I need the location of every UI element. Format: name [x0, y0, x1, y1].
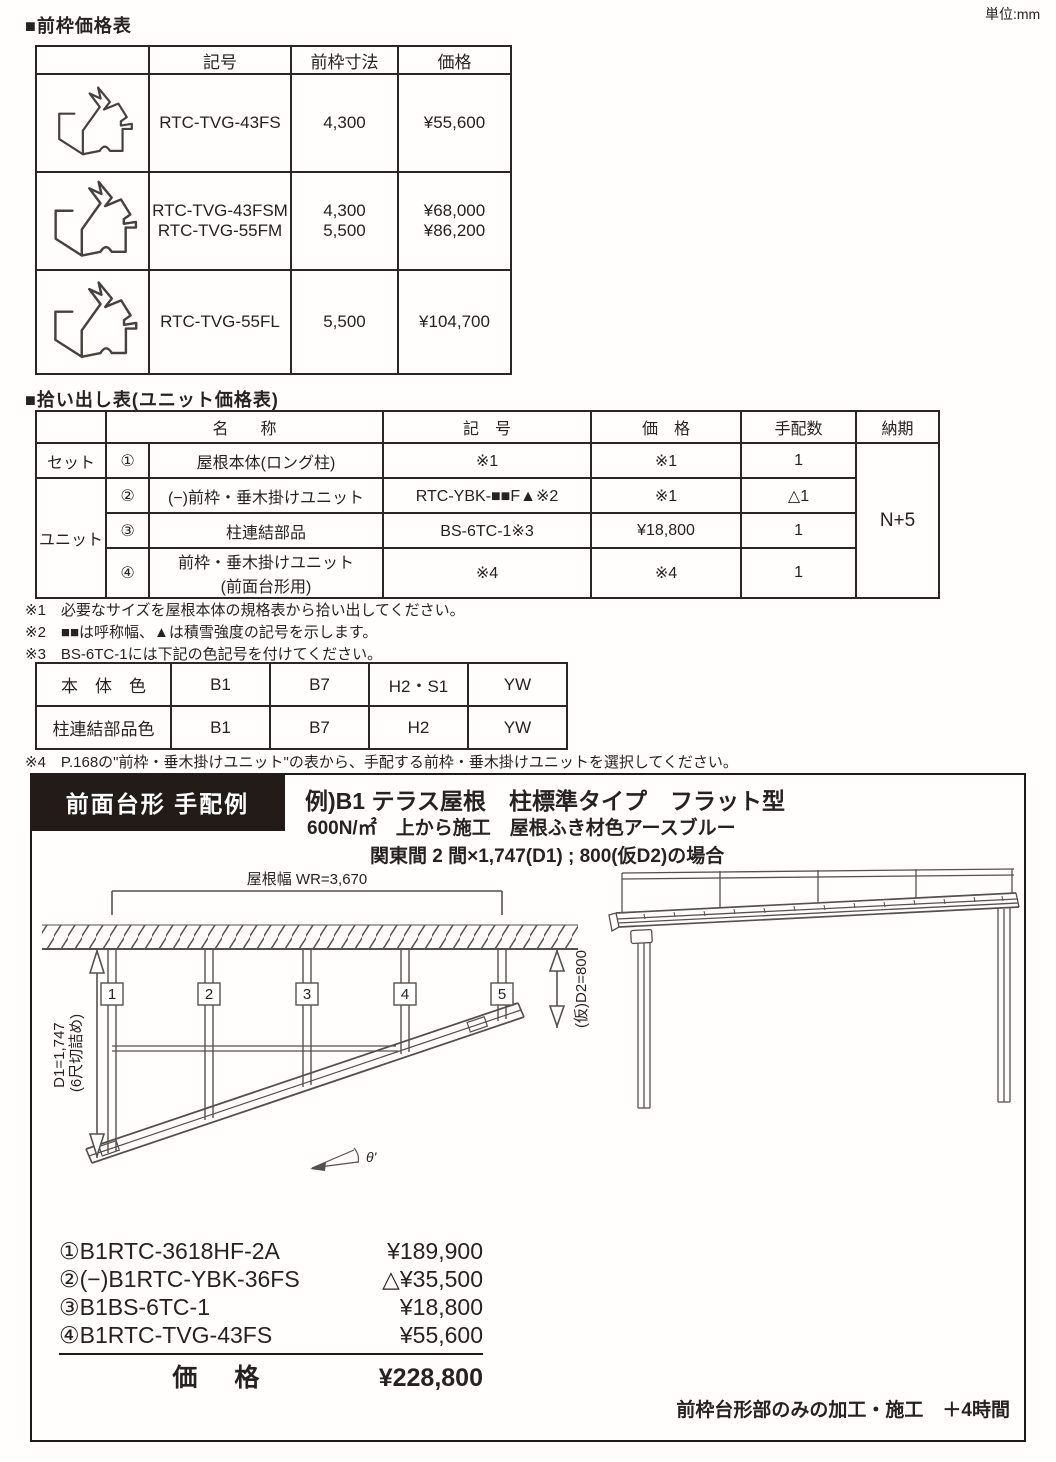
symbol-cell: ※4: [383, 548, 591, 598]
front-view-diagram: 屋根幅 WR=3,670 1 2 3 4 5 D1=1,747 (6尺切詰め) …: [40, 865, 600, 1200]
footer-note: 前枠台形部のみの加工・施工 ＋4時間: [676, 1395, 1010, 1422]
price-cell: ¥18,800: [591, 513, 741, 548]
row-number: ③: [106, 513, 149, 548]
list-item: ①B1RTC-3618HF-2A ¥189,900: [59, 1237, 483, 1265]
qty-cell: 1: [741, 513, 856, 548]
perspective-diagram: [604, 857, 1024, 1127]
dimension-line: 5,500: [292, 221, 397, 241]
total-label: 価 格: [59, 1361, 379, 1395]
name-line: 前枠・垂木掛けユニット: [150, 549, 382, 573]
table-row: セット ① 屋根本体(ロング柱) ※1 ※1 1 N+5: [36, 443, 939, 478]
d2-dimension-label: (仮)D2=800: [573, 950, 590, 1028]
note-4: ※4 P.168の"前枠・垂木掛けユニット"の表から、手配する前枠・垂木掛けユニ…: [25, 752, 738, 774]
color-code-table: 本 体 色 B1 B7 H2・S1 YW 柱連結部品色 B1 B7 H2 YW: [35, 662, 568, 750]
color-cell: B7: [270, 663, 369, 706]
price-cell: ¥68,000 ¥86,200: [398, 172, 511, 270]
table-row: ③ 柱連結部品 BS-6TC-1※3 ¥18,800 1: [36, 513, 939, 548]
color-cell: B1: [171, 706, 270, 749]
group-label-set: セット: [36, 443, 106, 478]
delivery-header: 納期: [856, 411, 939, 443]
total-price: ¥228,800: [379, 1361, 483, 1395]
roof-width-label: 屋根幅 WR=3,670: [247, 871, 367, 888]
dimension-line: 4,300: [292, 201, 397, 221]
list-item: ②(−)B1RTC-YBK-36FS △¥35,500: [59, 1265, 483, 1293]
post-number-4: 4: [401, 986, 409, 1003]
table-row: 本 体 色 B1 B7 H2・S1 YW: [36, 663, 567, 706]
example-box-title: 前面台形 手配例: [30, 773, 285, 831]
table-row: RTC-TVG-55FL 5,500 ¥104,700: [36, 270, 511, 374]
profile-drawing-icon: [36, 270, 149, 374]
profile-drawing-icon: [36, 172, 149, 270]
symbol-cell: RTC-YBK-■■F▲※2: [383, 478, 591, 513]
list-item: ④B1RTC-TVG-43FS ¥55,600: [59, 1321, 483, 1349]
list-item: ③B1BS-6TC-1 ¥18,800: [59, 1293, 483, 1321]
item-price: △¥35,500: [382, 1265, 483, 1293]
body-color-label: 本 体 色: [36, 663, 171, 706]
note-2: ※2 ■■は呼称幅、▲は積雪強度の記号を示します。: [25, 622, 377, 644]
name-cell: 前枠・垂木掛けユニット (前面台形用): [149, 548, 383, 598]
item-name: ④B1RTC-TVG-43FS: [59, 1321, 272, 1349]
symbol-cell: RTC-TVG-43FSM RTC-TVG-55FM: [149, 172, 291, 270]
item-name: ①B1RTC-3618HF-2A: [59, 1237, 280, 1265]
table-header-row: 名 称 記 号 価 格 手配数 納期: [36, 411, 939, 443]
example-box: 前面台形 手配例 例)B1 テラス屋根 柱標準タイプ フラット型 600N/㎡ …: [30, 773, 1026, 1442]
item-price: ¥18,800: [400, 1293, 483, 1321]
price-line: ¥86,200: [399, 221, 510, 241]
group-label-unit: ユニット: [36, 478, 106, 598]
row-number: ①: [106, 443, 149, 478]
price-header: 価 格: [591, 411, 741, 443]
qty-header: 手配数: [741, 411, 856, 443]
table-row: ユニット ② (−)前枠・垂木掛けユニット RTC-YBK-■■F▲※2 ※1 …: [36, 478, 939, 513]
front-frame-table-heading: ■前枠価格表: [25, 12, 132, 38]
qty-cell: △1: [741, 478, 856, 513]
pickup-table-heading: ■拾い出し表(ユニット価格表): [25, 386, 279, 412]
color-cell: H2・S1: [369, 663, 468, 706]
table-row: 柱連結部品色 B1 B7 H2 YW: [36, 706, 567, 749]
item-price: ¥55,600: [400, 1321, 483, 1349]
color-cell: YW: [468, 706, 567, 749]
example-line-1: 例)B1 テラス屋根 柱標準タイプ フラット型: [305, 782, 785, 816]
unit-label: 単位:mm: [985, 4, 1040, 24]
item-name: ③B1BS-6TC-1: [59, 1293, 210, 1321]
symbol-header: 記号: [149, 46, 291, 74]
profile-drawing-icon: [36, 74, 149, 172]
symbol-cell: RTC-TVG-43FS: [149, 74, 291, 172]
table-row: ④ 前枠・垂木掛けユニット (前面台形用) ※4 ※4 1: [36, 548, 939, 598]
name-cell: 屋根本体(ロング柱): [149, 443, 383, 478]
symbol-header: 記 号: [383, 411, 591, 443]
table-row: RTC-TVG-43FSM RTC-TVG-55FM 4,300 5,500 ¥…: [36, 172, 511, 270]
post-number-2: 2: [205, 986, 213, 1003]
dimension-cell: 5,500: [291, 270, 398, 374]
d1-dimension-label: D1=1,747 (6尺切詰め): [51, 1014, 85, 1092]
row-number: ②: [106, 478, 149, 513]
blank-header-cell: [36, 411, 106, 443]
price-header: 価格: [398, 46, 511, 74]
dimension-header: 前枠寸法: [291, 46, 398, 74]
table-row: RTC-TVG-43FS 4,300 ¥55,600: [36, 74, 511, 172]
pickup-price-table: 名 称 記 号 価 格 手配数 納期 セット ① 屋根本体(ロング柱) ※1 ※…: [35, 410, 940, 599]
color-cell: B1: [171, 663, 270, 706]
price-cell: ※1: [591, 478, 741, 513]
price-line: ¥68,000: [399, 201, 510, 221]
price-cell: ¥55,600: [398, 74, 511, 172]
dimension-cell: 4,300 5,500: [291, 172, 398, 270]
pillar-color-label: 柱連結部品色: [36, 706, 171, 749]
symbol-cell: RTC-TVG-55FL: [149, 270, 291, 374]
name-cell: (−)前枠・垂木掛けユニット: [149, 478, 383, 513]
name-header: 名 称: [106, 411, 383, 443]
qty-cell: 1: [741, 548, 856, 598]
name-line: (前面台形用): [150, 573, 382, 597]
symbol-cell: BS-6TC-1※3: [383, 513, 591, 548]
delivery-cell: N+5: [856, 443, 939, 598]
post-number-1: 1: [108, 986, 116, 1003]
post-number-5: 5: [498, 986, 506, 1003]
table-header-row: 記号 前枠寸法 価格: [36, 46, 511, 74]
total-row: 価 格 ¥228,800: [59, 1353, 483, 1395]
item-name: ②(−)B1RTC-YBK-36FS: [59, 1265, 300, 1293]
post-number-3: 3: [303, 986, 311, 1003]
price-cell: ※4: [591, 548, 741, 598]
d1-note: (6尺切詰め): [68, 1014, 85, 1092]
dimension-cell: 4,300: [291, 74, 398, 172]
example-price-list: ①B1RTC-3618HF-2A ¥189,900 ②(−)B1RTC-YBK-…: [59, 1237, 483, 1395]
symbol-line: RTC-TVG-55FM: [150, 221, 290, 241]
angle-label: θ': [366, 1149, 378, 1165]
price-cell: ※1: [591, 443, 741, 478]
color-cell: B7: [270, 706, 369, 749]
symbol-cell: ※1: [383, 443, 591, 478]
row-number: ④: [106, 548, 149, 598]
item-price: ¥189,900: [387, 1237, 483, 1265]
front-frame-price-table: 記号 前枠寸法 価格 RTC-TVG-43FS 4,300 ¥55,600: [35, 45, 512, 375]
example-line-2: 600N/㎡ 上から施工 屋根ふき材色アースブルー: [307, 813, 736, 840]
blank-header-cell: [36, 46, 149, 74]
color-cell: YW: [468, 663, 567, 706]
name-cell: 柱連結部品: [149, 513, 383, 548]
symbol-line: RTC-TVG-43FSM: [150, 201, 290, 221]
price-cell: ¥104,700: [398, 270, 511, 374]
d1-value: D1=1,747: [51, 1022, 68, 1087]
qty-cell: 1: [741, 443, 856, 478]
note-1: ※1 必要なサイズを屋根本体の規格表から拾い出してください。: [25, 600, 465, 622]
catalog-page: 単位:mm ■前枠価格表 記号 前枠寸法 価格 RTC-TVG-43FS 4,3…: [0, 0, 1056, 1462]
color-cell: H2: [369, 706, 468, 749]
